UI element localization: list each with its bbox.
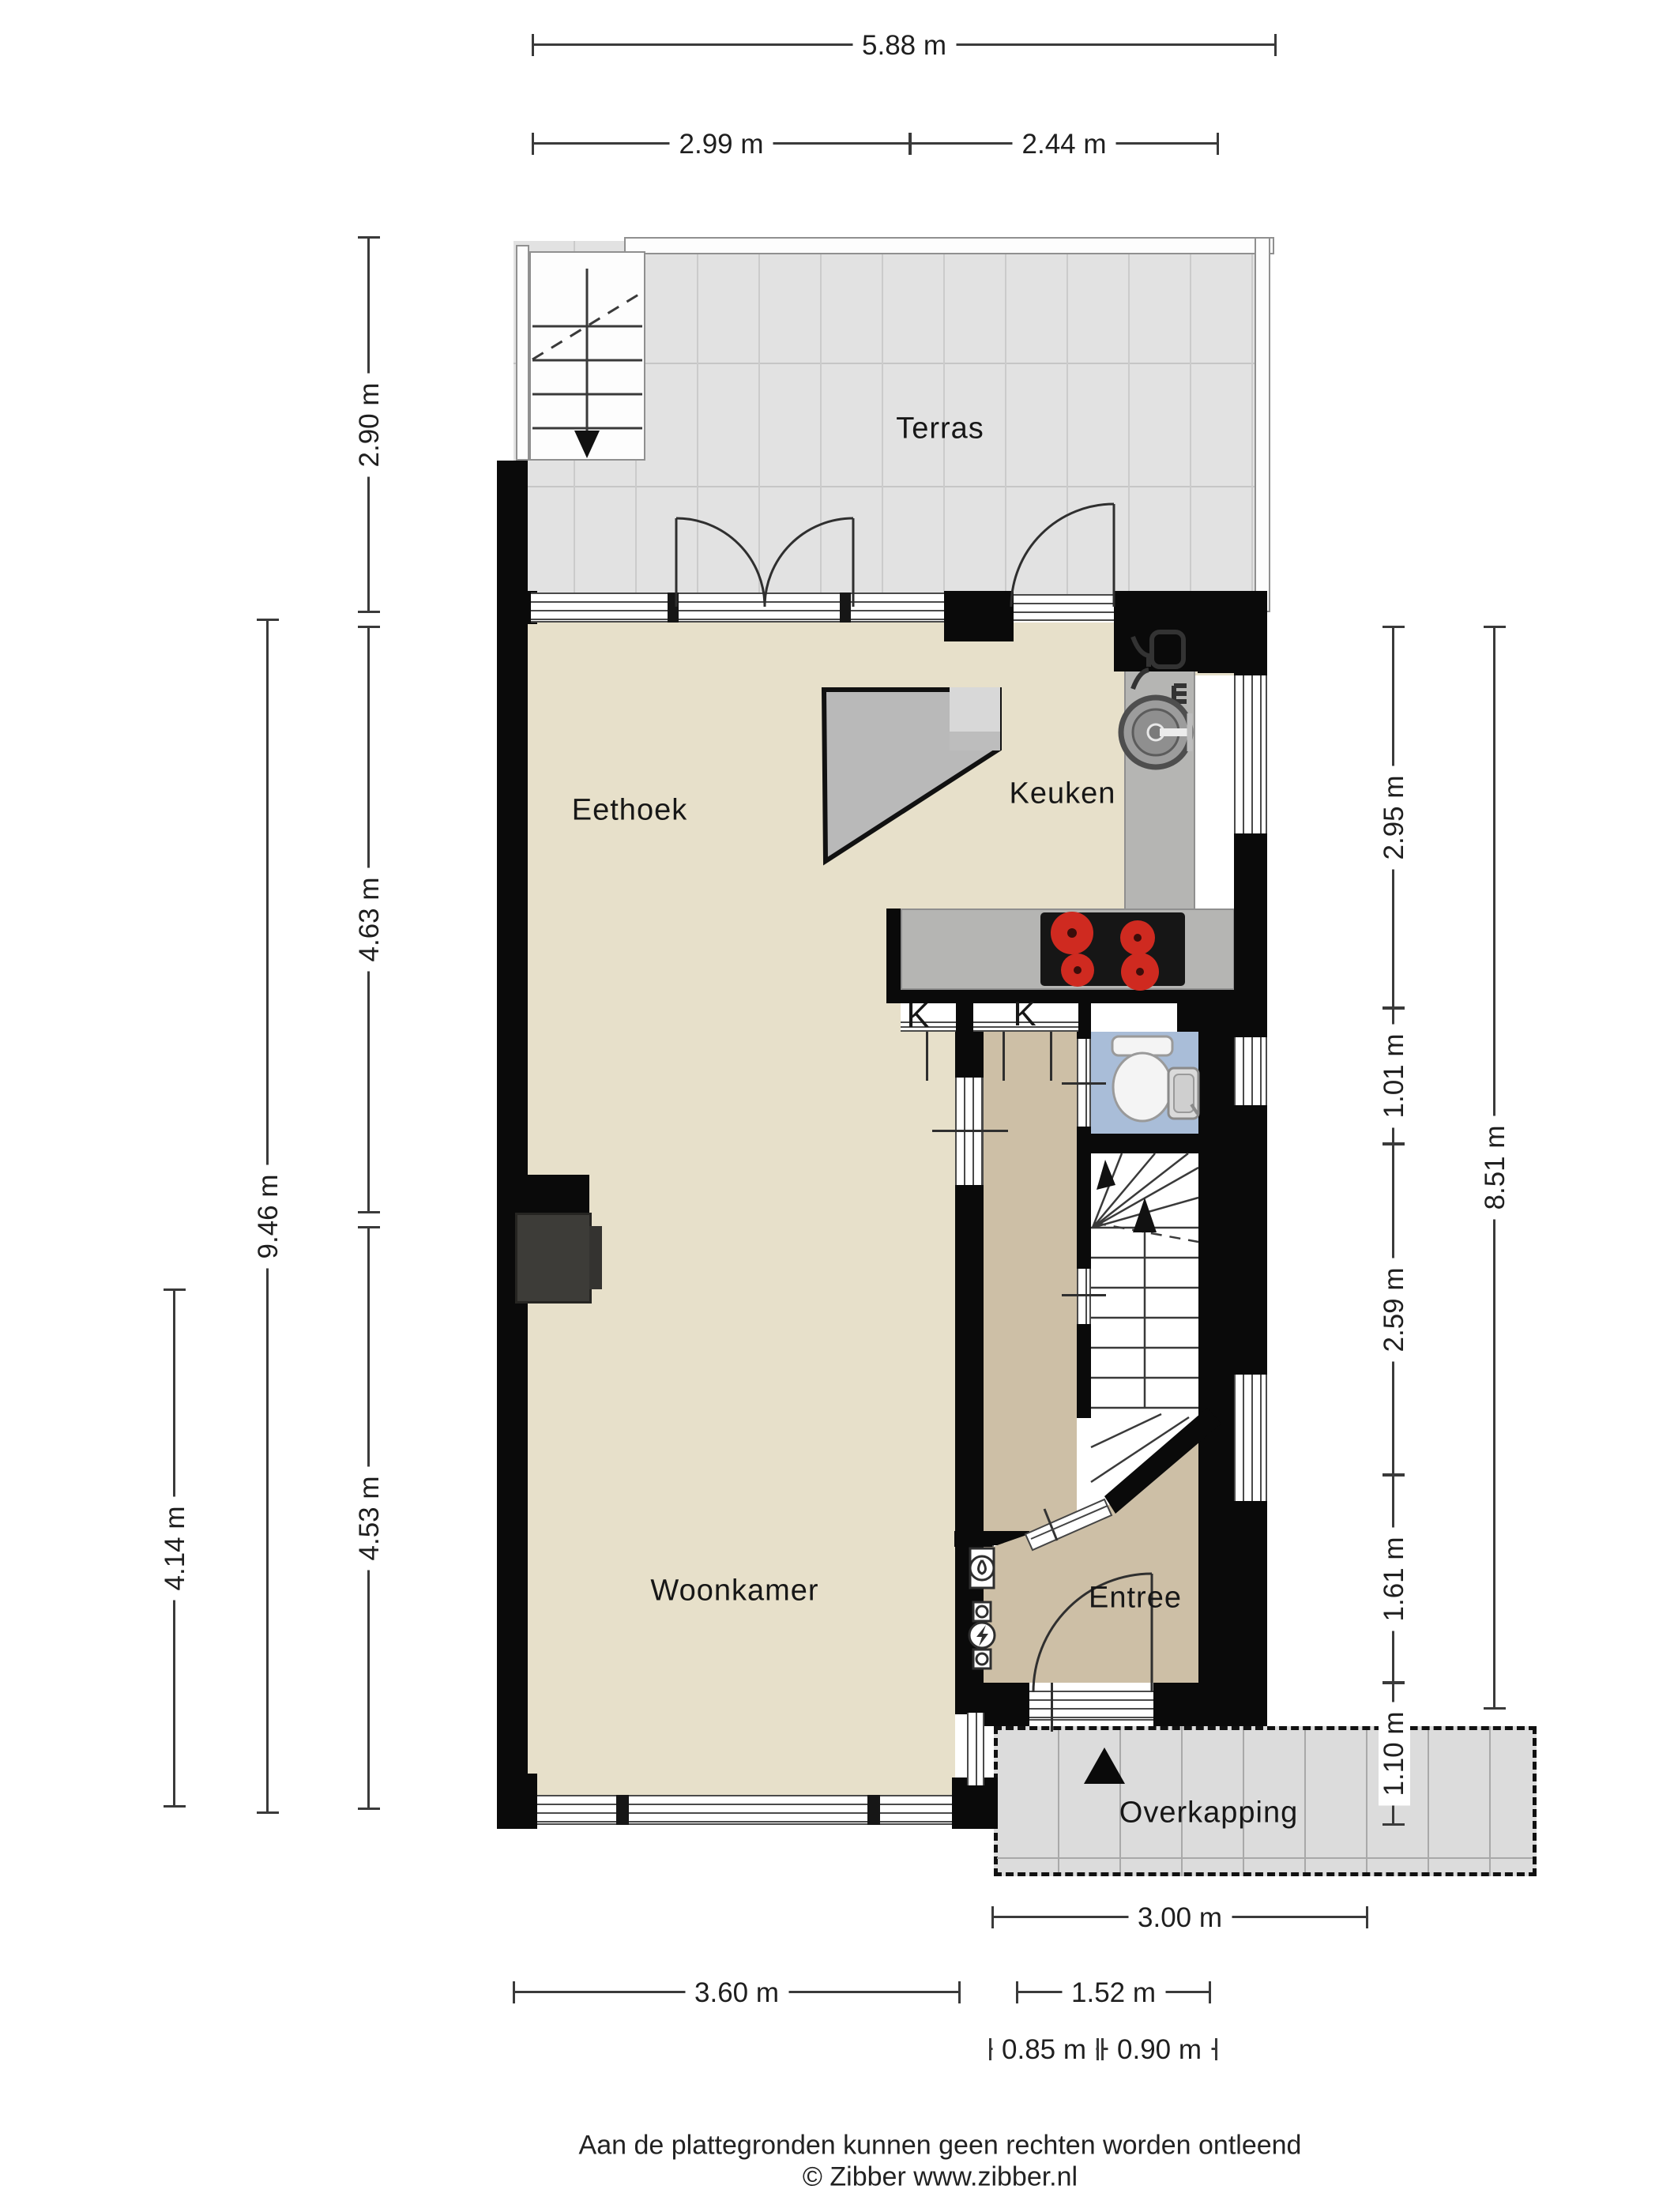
disclaimer-text: Aan de plattegronden kunnen geen rechten… [579, 2131, 1302, 2161]
dim-left-290: 2.90 m [367, 237, 370, 612]
room-label-overkapping: Overkapping [1119, 1796, 1298, 1830]
dim-right-161: 1.61 m [1392, 1475, 1394, 1683]
dim-left-414: 4.14 m [173, 1289, 175, 1807]
room-label-keuken: Keuken [1010, 777, 1116, 811]
toilet-fixture [1112, 1036, 1172, 1121]
dim-bottom-360: 3.60 m [513, 1991, 960, 1993]
toilet-sink [1168, 1068, 1198, 1119]
dim-top-299: 2.99 m [532, 142, 910, 145]
plan-vector-overlay [0, 0, 1659, 2212]
copyright-text: © Zibber www.zibber.nl [803, 2162, 1078, 2193]
room-label-woonkamer: Woonkamer [650, 1574, 818, 1608]
dim-right-259: 2.59 m [1392, 1144, 1394, 1475]
dim-bottom-085: 0.85 m [990, 2048, 1098, 2050]
kitchen-sink [1121, 698, 1191, 767]
floorplan-page: { "rooms": { "terras": {"label": "Terras… [0, 0, 1659, 2212]
dim-left-463: 4.63 m [367, 626, 370, 1213]
stairs-down-arrow [574, 431, 600, 458]
dim-right-851: 8.51 m [1493, 626, 1495, 1709]
dim-bottom-152: 1.52 m [1017, 1991, 1210, 1993]
terrace-stairs [532, 269, 642, 458]
cooktop-burners [1051, 912, 1159, 991]
room-label-entree: Entree [1089, 1582, 1182, 1616]
meter-cabinet [969, 1548, 995, 1668]
dim-right-295: 2.95 m [1392, 626, 1394, 1008]
dim-right-110: 1.10 m [1392, 1683, 1394, 1825]
k-marker-right: K [1013, 995, 1036, 1034]
k-marker-left: K [906, 996, 929, 1036]
entrance-arrow [1084, 1747, 1125, 1784]
dim-bottom-300: 3.00 m [992, 1916, 1367, 1918]
terrace-door-swings [676, 504, 1114, 607]
room-label-terras: Terras [896, 412, 984, 446]
room-label-eethoek: Eethoek [572, 794, 687, 828]
dim-bottom-090: 0.90 m [1102, 2048, 1217, 2050]
interior-stairs [1091, 1153, 1198, 1408]
sloped-ceiling-shape [824, 687, 1000, 861]
dim-top-244: 2.44 m [910, 142, 1218, 145]
dim-top-588: 5.88 m [532, 43, 1276, 46]
dim-left-946: 9.46 m [266, 619, 269, 1813]
dim-left-453: 4.53 m [367, 1227, 370, 1809]
dim-right-101: 1.01 m [1392, 1008, 1394, 1144]
